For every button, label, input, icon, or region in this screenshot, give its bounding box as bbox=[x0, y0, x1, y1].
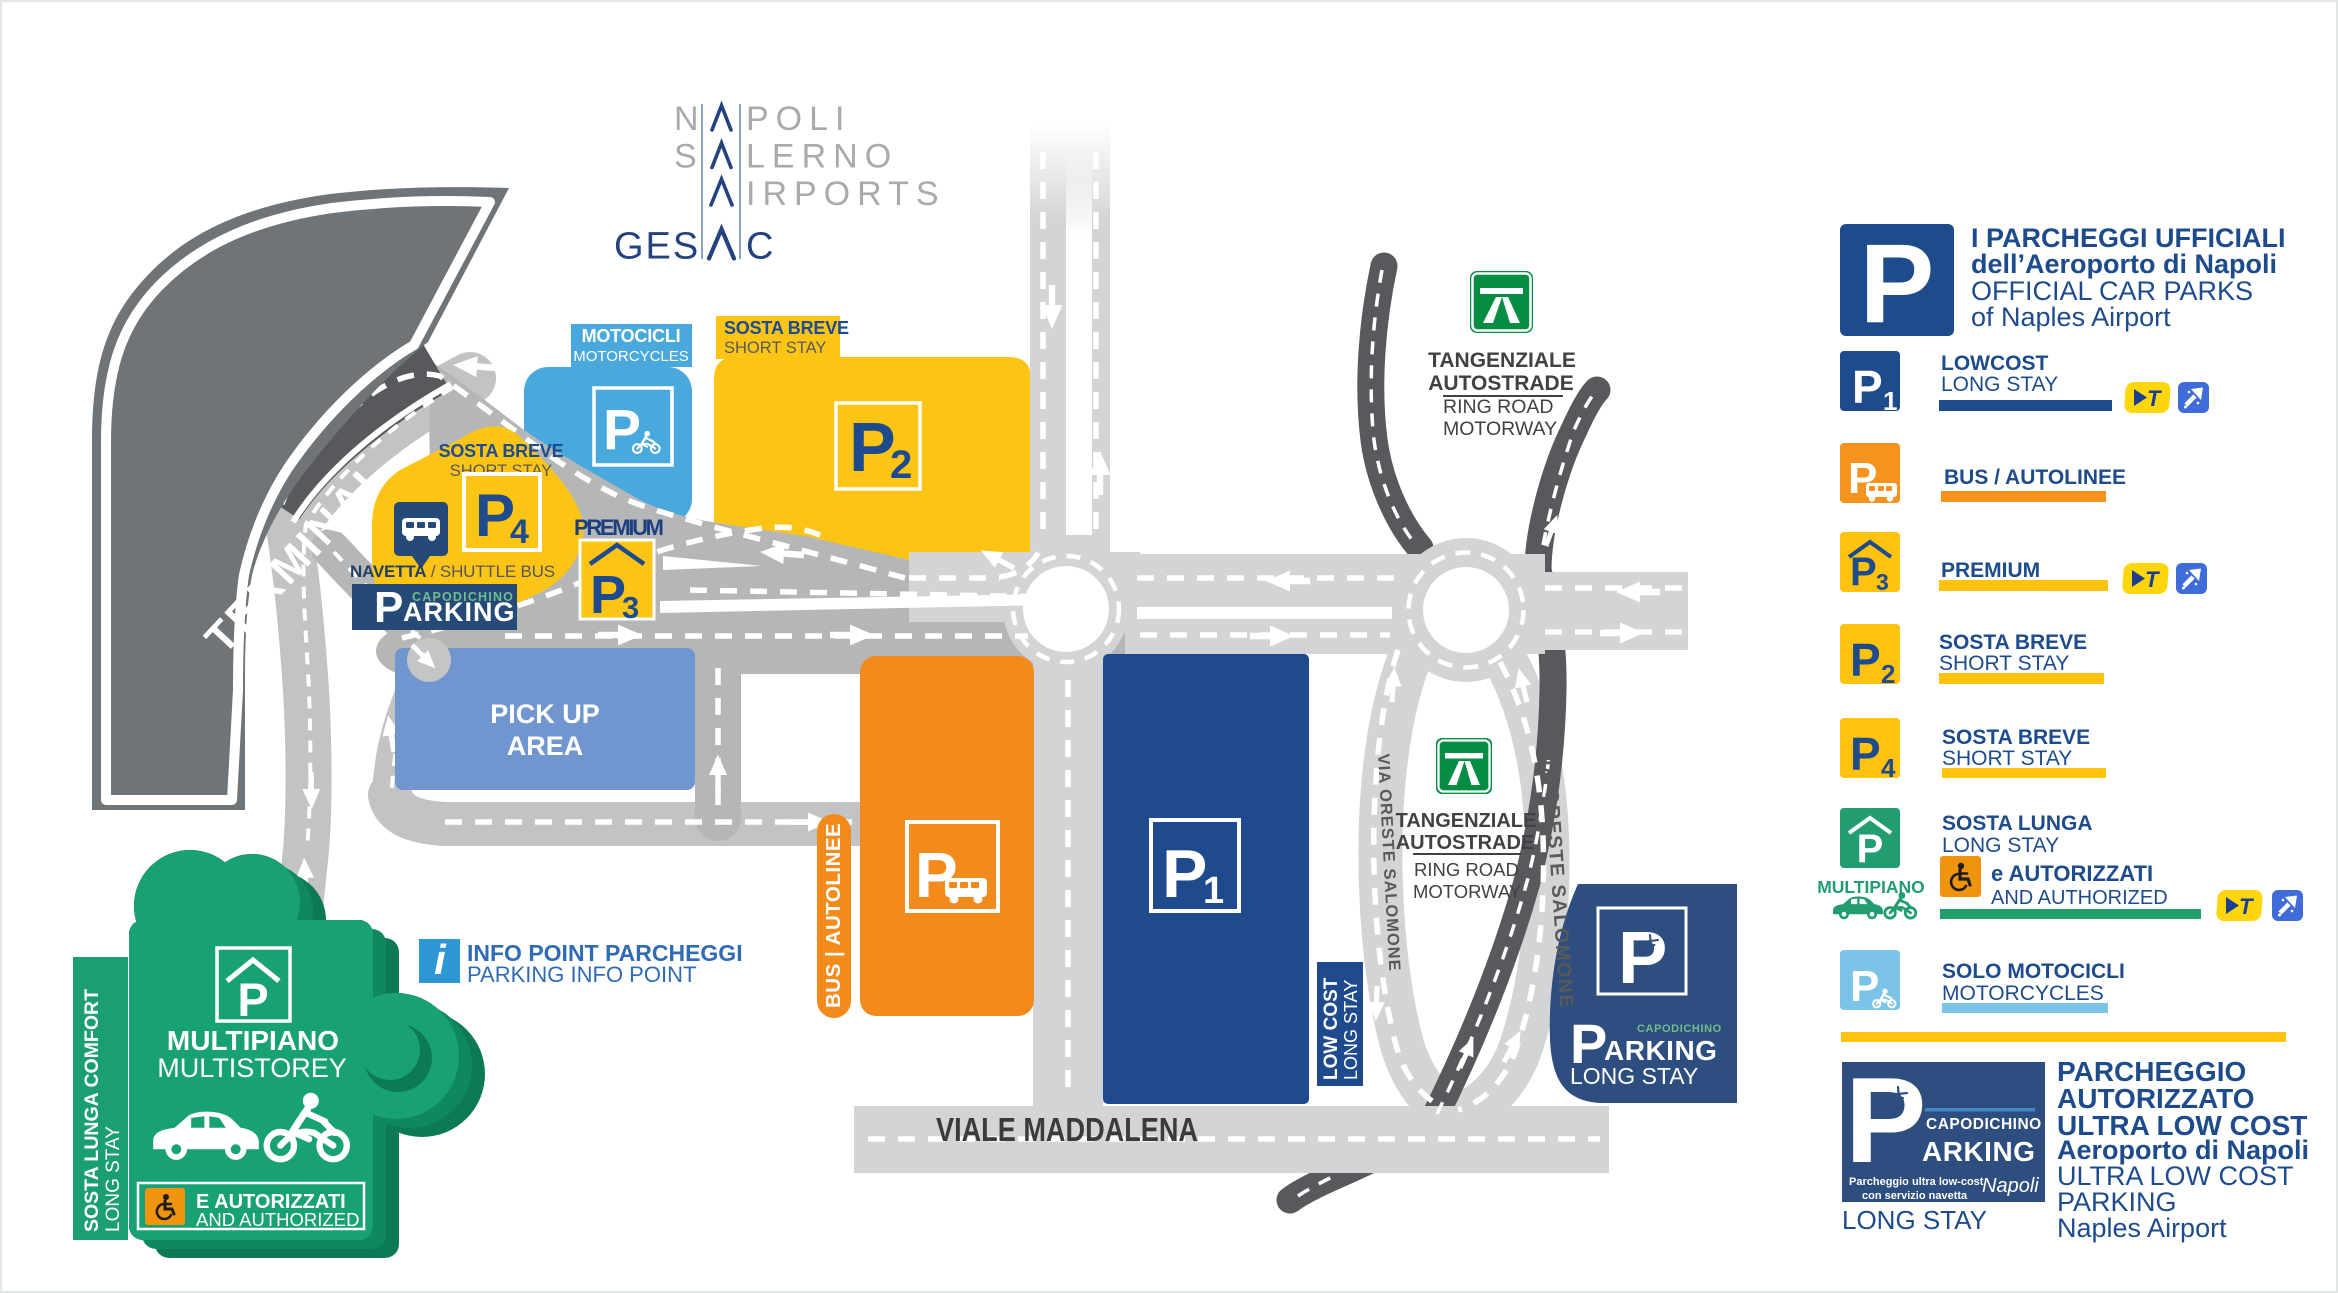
svg-text:Parcheggio ultra low-cost: Parcheggio ultra low-cost bbox=[1849, 1176, 1984, 1188]
svg-text:PARKING INFO POINT: PARKING INFO POINT bbox=[467, 962, 696, 987]
svg-text:P: P bbox=[237, 973, 268, 1026]
svg-text:1: 1 bbox=[1203, 870, 1224, 912]
svg-text:P: P bbox=[1618, 916, 1667, 999]
svg-text:PREMIUM: PREMIUM bbox=[1941, 559, 2040, 582]
svg-text:e AUTORIZZATI: e AUTORIZZATI bbox=[1991, 861, 2153, 886]
svg-text:TANGENZIALE: TANGENZIALE bbox=[1428, 349, 1576, 372]
svg-text:AREA: AREA bbox=[507, 731, 584, 761]
svg-text:LONG STAY: LONG STAY bbox=[1941, 373, 2058, 396]
svg-text:CAPODICHINO: CAPODICHINO bbox=[1637, 1023, 1722, 1035]
svg-text:SOSTA BREVE: SOSTA BREVE bbox=[724, 318, 849, 338]
svg-text:VIALE MADDALENA: VIALE MADDALENA bbox=[936, 1111, 1198, 1148]
svg-text:SOLO MOTOCICLI: SOLO MOTOCICLI bbox=[1942, 960, 2125, 983]
svg-text:LONG STAY: LONG STAY bbox=[1341, 980, 1361, 1080]
svg-text:S: S bbox=[674, 138, 702, 176]
svg-text:Napoli: Napoli bbox=[1982, 1175, 2039, 1197]
svg-text:P: P bbox=[1162, 836, 1207, 912]
svg-text:SHORT STAY: SHORT STAY bbox=[1942, 747, 2072, 770]
svg-text:i: i bbox=[434, 936, 447, 983]
svg-text:LOWCOST: LOWCOST bbox=[1941, 352, 2048, 375]
svg-text:SHORT STAY: SHORT STAY bbox=[1939, 652, 2069, 675]
svg-text:4: 4 bbox=[1881, 753, 1896, 783]
svg-text:LONG STAY: LONG STAY bbox=[1570, 1063, 1698, 1089]
svg-text:dell’Aeroporto di Napoli: dell’Aeroporto di Napoli bbox=[1971, 249, 2277, 279]
svg-text:PICK UP: PICK UP bbox=[490, 699, 600, 729]
svg-text:GES: GES bbox=[614, 226, 700, 268]
svg-text:MOTORWAY: MOTORWAY bbox=[1413, 881, 1521, 902]
svg-text:P: P bbox=[1857, 827, 1884, 871]
svg-text:MULTISTOREY: MULTISTOREY bbox=[157, 1053, 347, 1083]
svg-text:3: 3 bbox=[622, 590, 639, 625]
svg-text:P: P bbox=[1850, 550, 1877, 594]
svg-text:N: N bbox=[674, 100, 704, 138]
svg-text:SOSTA BREVE: SOSTA BREVE bbox=[1939, 631, 2087, 654]
svg-text:C: C bbox=[746, 226, 775, 268]
svg-text:AND AUTHORIZED: AND AUTHORIZED bbox=[1991, 887, 2168, 909]
svg-text:LONG STAY: LONG STAY bbox=[1842, 1205, 1987, 1235]
svg-text:SHORT STAY: SHORT STAY bbox=[724, 339, 826, 357]
svg-text:SOSTA LUNGA COMFORT: SOSTA LUNGA COMFORT bbox=[81, 989, 103, 1232]
svg-text:SOSTA LUNGA: SOSTA LUNGA bbox=[1942, 812, 2093, 835]
svg-text:BUS / AUTOLINEE: BUS / AUTOLINEE bbox=[1944, 466, 2126, 489]
svg-text:P: P bbox=[1845, 1052, 1926, 1188]
svg-text:LOW COST: LOW COST bbox=[1321, 977, 1342, 1080]
svg-text:MULTIPIANO: MULTIPIANO bbox=[1817, 877, 1925, 897]
svg-text:CAPODICHINO: CAPODICHINO bbox=[1926, 1116, 2042, 1133]
svg-text:AND AUTHORIZED: AND AUTHORIZED bbox=[196, 1209, 359, 1230]
svg-text:P: P bbox=[1852, 361, 1883, 413]
svg-text:LONG STAY: LONG STAY bbox=[103, 1126, 124, 1232]
svg-text:P: P bbox=[849, 408, 896, 486]
svg-text:TANGENZIALE: TANGENZIALE bbox=[1396, 810, 1537, 832]
svg-text:3: 3 bbox=[1876, 569, 1889, 595]
svg-text:MOTOCICLI: MOTOCICLI bbox=[582, 326, 681, 346]
svg-text:Naples Airport: Naples Airport bbox=[2057, 1213, 2227, 1243]
svg-text:SOSTA BREVE: SOSTA BREVE bbox=[439, 441, 564, 461]
svg-text:MOTORCYCLES: MOTORCYCLES bbox=[573, 348, 689, 365]
svg-text:AUTOSTRADE: AUTOSTRADE bbox=[1396, 832, 1535, 854]
svg-text:of Naples Airport: of Naples Airport bbox=[1971, 302, 2171, 332]
svg-text:4: 4 bbox=[510, 513, 529, 551]
svg-text:NAVETTA / SHUTTLE BUS: NAVETTA / SHUTTLE BUS bbox=[350, 562, 555, 581]
svg-text:RING ROAD: RING ROAD bbox=[1443, 396, 1554, 418]
svg-text:AUTOSTRADE: AUTOSTRADE bbox=[1428, 372, 1573, 395]
svg-text:P: P bbox=[1860, 221, 1935, 346]
svg-text:IRPORTS: IRPORTS bbox=[746, 175, 946, 213]
svg-text:PREMIUM: PREMIUM bbox=[574, 515, 664, 540]
svg-text:1: 1 bbox=[1883, 386, 1897, 416]
svg-text:MOTORCYCLES: MOTORCYCLES bbox=[1942, 982, 2104, 1005]
svg-text:P: P bbox=[1850, 728, 1881, 780]
svg-text:2: 2 bbox=[1881, 659, 1895, 689]
svg-text:MULTIPIANO: MULTIPIANO bbox=[167, 1025, 339, 1056]
svg-text:P: P bbox=[374, 583, 403, 632]
svg-text:P: P bbox=[590, 565, 626, 625]
svg-text:POLI: POLI bbox=[746, 100, 851, 138]
svg-text:ARKING: ARKING bbox=[1604, 1035, 1717, 1066]
svg-text:MOTORWAY: MOTORWAY bbox=[1443, 418, 1557, 440]
svg-text:LERNO: LERNO bbox=[746, 138, 898, 176]
svg-text:LONG STAY: LONG STAY bbox=[1942, 834, 2059, 857]
svg-text:P: P bbox=[1850, 634, 1881, 686]
svg-text:RING ROAD: RING ROAD bbox=[1414, 859, 1519, 880]
svg-text:SOSTA BREVE: SOSTA BREVE bbox=[1942, 726, 2090, 749]
svg-text:ARKING: ARKING bbox=[1922, 1136, 2035, 1167]
svg-text:P: P bbox=[1850, 962, 1879, 1011]
svg-text:CAPODICHINO: CAPODICHINO bbox=[412, 590, 514, 604]
svg-text:BUS | AUTOLINEE: BUS | AUTOLINEE bbox=[822, 823, 845, 1008]
svg-text:con servizio navetta: con servizio navetta bbox=[1862, 1190, 1968, 1202]
svg-text:2: 2 bbox=[890, 443, 912, 487]
